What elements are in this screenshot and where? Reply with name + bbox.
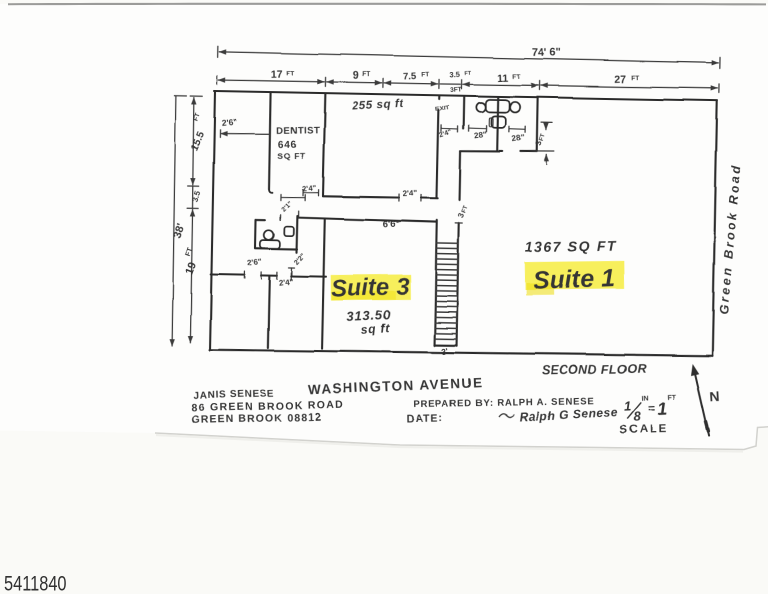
svg-text:74' 6": 74' 6" xyxy=(532,47,561,59)
svg-text:=: = xyxy=(648,401,656,415)
svg-text:FT: FT xyxy=(464,71,472,77)
svg-text:7.5: 7.5 xyxy=(403,71,417,82)
svg-text:6'6": 6'6" xyxy=(382,219,400,231)
svg-text:FT: FT xyxy=(421,71,429,78)
svg-text:11: 11 xyxy=(497,72,509,84)
svg-text:3FT: 3FT xyxy=(450,86,462,94)
svg-text:Suite 3: Suite 3 xyxy=(331,273,411,303)
svg-text:sq ft: sq ft xyxy=(360,321,391,337)
svg-text:FT: FT xyxy=(362,71,370,78)
svg-text:28": 28" xyxy=(512,133,526,143)
svg-text:1: 1 xyxy=(657,399,668,419)
svg-text:28": 28" xyxy=(474,130,488,140)
svg-text:3.5: 3.5 xyxy=(449,70,460,80)
svg-text:DATE:: DATE: xyxy=(407,412,443,425)
svg-text:1367 SQ FT: 1367 SQ FT xyxy=(525,238,617,255)
svg-text:2'4": 2'4" xyxy=(402,188,417,198)
svg-text:SECOND FLOOR: SECOND FLOOR xyxy=(541,362,647,378)
svg-text:2'6": 2'6" xyxy=(247,257,263,268)
svg-text:SCALE: SCALE xyxy=(619,424,668,437)
svg-text:SQ FT: SQ FT xyxy=(278,151,306,161)
svg-text:17: 17 xyxy=(271,69,283,81)
svg-text:FT: FT xyxy=(631,75,639,82)
svg-text:5411840: 5411840 xyxy=(4,572,67,594)
svg-text:FT: FT xyxy=(286,70,294,77)
svg-text:FT: FT xyxy=(513,73,521,80)
svg-text:2'6": 2'6" xyxy=(221,117,237,128)
svg-text:FT: FT xyxy=(667,394,677,401)
svg-text:9: 9 xyxy=(353,70,359,82)
svg-text:27: 27 xyxy=(614,74,626,86)
svg-text:646: 646 xyxy=(278,140,297,151)
svg-text:DENTIST: DENTIST xyxy=(277,125,321,137)
svg-text:2'4": 2'4" xyxy=(302,183,317,193)
svg-text:Suite 1: Suite 1 xyxy=(533,264,616,295)
svg-text:1: 1 xyxy=(624,398,632,413)
svg-text:N: N xyxy=(709,388,720,404)
